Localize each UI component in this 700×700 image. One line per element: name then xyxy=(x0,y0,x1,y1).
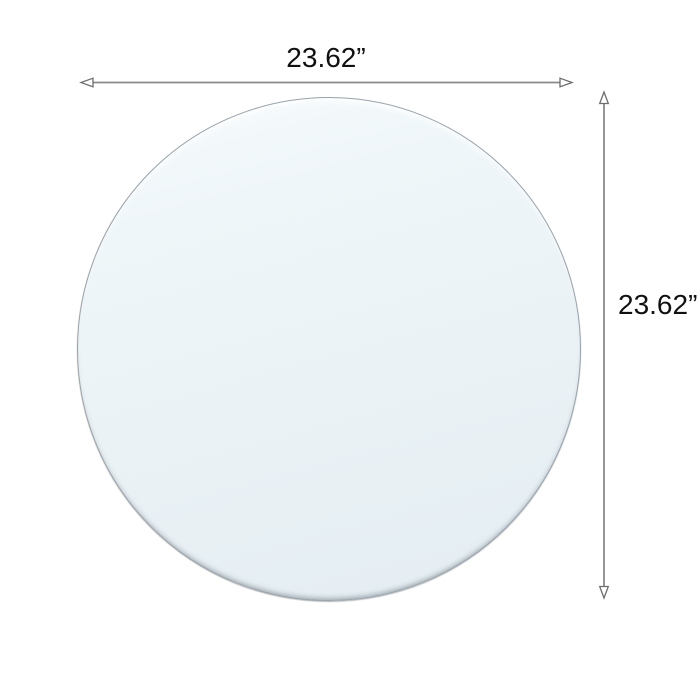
arrow-up-icon xyxy=(600,92,609,104)
arrow-right-icon xyxy=(560,78,572,87)
arrow-left-icon xyxy=(81,78,93,87)
dimension-diagram: 23.62” 23.62” xyxy=(0,0,700,700)
arrow-down-icon xyxy=(600,587,609,599)
height-dimension-line xyxy=(600,92,609,598)
height-dimension-label: 23.62” xyxy=(618,291,697,319)
round-glass-tabletop xyxy=(77,97,581,601)
width-dimension-line xyxy=(81,78,572,87)
width-dimension-label: 23.62” xyxy=(286,44,365,72)
